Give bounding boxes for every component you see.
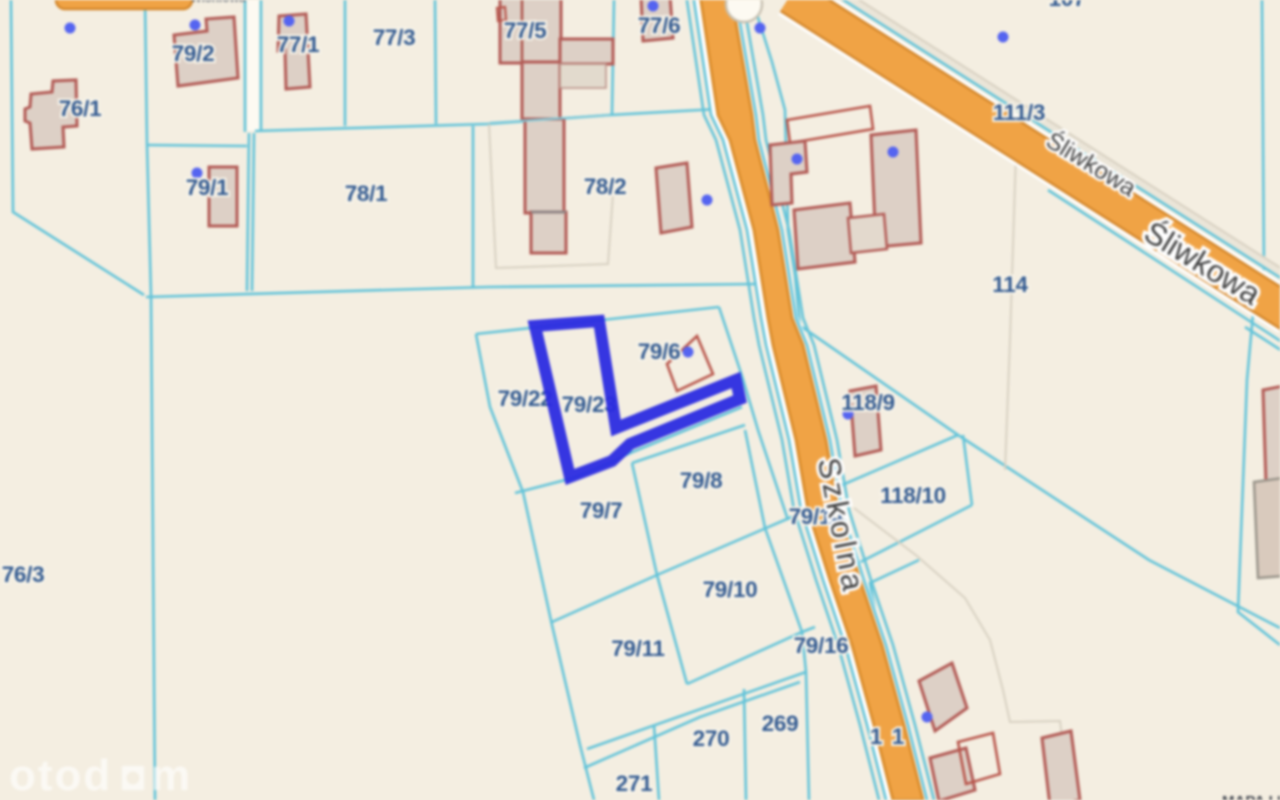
svg-text:111/3: 111/3	[993, 100, 1045, 125]
svg-text:79/10: 79/10	[703, 577, 758, 602]
svg-text:79/2: 79/2	[172, 41, 215, 66]
svg-text:77/1: 77/1	[277, 32, 320, 57]
svg-text:79/8: 79/8	[680, 468, 723, 493]
svg-text:otod: otod	[9, 751, 112, 800]
svg-text:77/6: 77/6	[638, 13, 681, 38]
svg-text:1: 1	[892, 724, 904, 749]
svg-text:114: 114	[992, 272, 1028, 297]
svg-text:271: 271	[616, 771, 653, 796]
svg-text:77/3: 77/3	[373, 25, 416, 50]
svg-text:79/11: 79/11	[611, 636, 665, 661]
svg-text:79/1: 79/1	[186, 175, 229, 200]
svg-text:270: 270	[693, 726, 730, 751]
svg-text:m: m	[151, 751, 190, 800]
svg-text:79/16: 79/16	[794, 633, 849, 658]
svg-text:76/1: 76/1	[59, 96, 102, 121]
svg-text:118/10: 118/10	[880, 483, 946, 508]
svg-text:77/5: 77/5	[504, 18, 547, 43]
svg-text:1: 1	[870, 724, 882, 749]
svg-text:118/9: 118/9	[841, 390, 895, 415]
svg-text:76/3: 76/3	[2, 562, 45, 587]
svg-text:MAPA I DANE: MAPA I DANE	[1222, 793, 1280, 800]
svg-text:Wisniowa: Wisniowa	[190, 0, 246, 5]
svg-text:269: 269	[762, 711, 799, 736]
svg-text:107: 107	[1049, 0, 1086, 11]
svg-text:78/2: 78/2	[584, 174, 627, 199]
svg-text:78/1: 78/1	[345, 181, 388, 206]
svg-text:79/7: 79/7	[580, 498, 623, 523]
svg-text:79/6: 79/6	[638, 339, 681, 364]
